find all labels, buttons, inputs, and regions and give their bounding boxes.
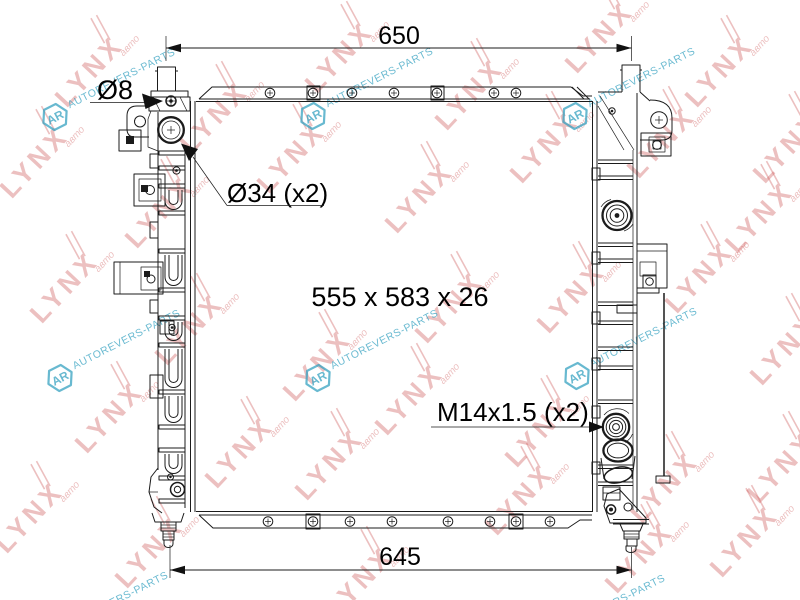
left-upper-bracket (119, 106, 149, 151)
lynx-watermark: LYNXавто (135, 262, 243, 372)
radiator-technical-drawing: LYNXавтоLYNXавтоLYNXавтоLYNXавтоLYNXавто… (0, 0, 800, 600)
lynx-watermark-text: LYNX (69, 376, 149, 459)
lynx-watermark-text: LYNX (744, 308, 800, 391)
left-tank (114, 67, 190, 548)
lynx-watermark-text: LYNX (559, 0, 639, 79)
left-mid-bracket (114, 262, 163, 294)
filler-cap (601, 200, 633, 232)
phi34-text: Ø34 (x2) (227, 178, 328, 208)
lynx-watermark-sub: авто (188, 174, 213, 200)
lynx-watermark: LYNXавто (0, 450, 83, 560)
watermark-slash-marks (780, 292, 800, 323)
autorevers-watermark: ARAUTOREVERS-PARTS (560, 304, 703, 392)
thread-fitting-m14 (603, 409, 633, 443)
lynx-watermark: LYNXавто (727, 400, 800, 510)
lynx-watermark: LYNXавто (415, 27, 523, 137)
lynx-watermark-sub: авто (628, 0, 653, 25)
lynx-watermark-text: LYNX (679, 30, 759, 113)
m14-text: M14x1.5 (x2) (437, 397, 589, 427)
lynx-watermark-sub: авто (58, 479, 83, 505)
lynx-watermark-sub: авто (690, 104, 715, 130)
lynx-watermark-sub: авто (748, 33, 773, 59)
radiator-drawing-page: LYNXавтоLYNXавтоLYNXавтоLYNXавтоLYNXавто… (0, 0, 800, 600)
lynx-watermark-sub: авто (498, 56, 523, 82)
lynx-watermark-sub: авто (63, 124, 88, 150)
lynx-watermark-sub: авто (243, 79, 268, 105)
lynx-watermark-text: LYNX (199, 411, 279, 494)
lynx-watermark: LYNXавто (730, 282, 800, 392)
lynx-watermark-sub: авто (218, 291, 243, 317)
right-mid-bracket (617, 244, 670, 483)
phi8-text: Ø8 (97, 75, 133, 105)
lynx-watermark-text: LYNX (719, 176, 799, 259)
label-m14-thread: M14x1.5 (x2) (431, 397, 604, 433)
lynx-watermark-sub: авто (268, 414, 293, 440)
dimension-650-label: 650 (378, 22, 420, 50)
inlet-pipe-circle (148, 111, 184, 151)
lynx-watermark-text: LYNX (659, 236, 739, 319)
lynx-watermark-text: LYNX (149, 288, 229, 371)
lynx-watermark-text: LYNX (531, 256, 611, 339)
label-phi8: Ø8 (90, 75, 163, 109)
dimension-645: 645 (170, 543, 632, 578)
outlet-pipe (601, 440, 635, 486)
lynx-watermark-text: LYNX (0, 121, 74, 204)
dimension-645-label: 645 (379, 543, 421, 571)
lynx-watermark-text: LYNX (379, 156, 459, 239)
lynx-watermark-text: LYNX (24, 246, 104, 329)
lynx-watermark-sub: авто (438, 361, 463, 387)
overall-size-text: 555 x 583 x 26 (311, 282, 488, 312)
lynx-watermark-text: LYNX (289, 423, 369, 506)
phi8-screw (166, 96, 176, 106)
lynx-watermark-text: LYNX (0, 476, 69, 559)
lynx-watermark-sub: авто (548, 461, 573, 487)
lynx-watermark-text: LYNX (704, 500, 784, 583)
lynx-watermark-sub: авто (773, 503, 798, 529)
autorevers-watermark: ARAUTOREVERS-PARTS (528, 571, 671, 600)
lynx-watermark-sub: авто (118, 33, 143, 59)
lynx-watermark: LYNXавто (55, 350, 163, 460)
lynx-watermark-sub: авто (668, 519, 693, 545)
lynx-watermark: LYNXавто (185, 385, 293, 495)
lynx-watermark: LYNXавто (365, 130, 473, 240)
lynx-watermark: LYNXавто (10, 220, 118, 330)
autorevers-watermark: ARAUTOREVERS-PARTS (31, 568, 174, 600)
lynx-watermark-sub: авто (693, 449, 718, 475)
lynx-watermark-sub: авто (178, 514, 203, 540)
lynx-watermark-sub: авто (448, 159, 473, 185)
bottom-mounting-bar (199, 514, 592, 529)
autorevers-watermark-text: AUTOREVERS-PARTS (588, 305, 700, 370)
label-overall-size: 555 x 583 x 26 (311, 282, 488, 312)
lynx-watermark: LYNXавто (275, 397, 383, 507)
lynx-watermark-text: LYNX (747, 106, 800, 189)
lynx-watermark: LYNXавто (545, 0, 653, 81)
